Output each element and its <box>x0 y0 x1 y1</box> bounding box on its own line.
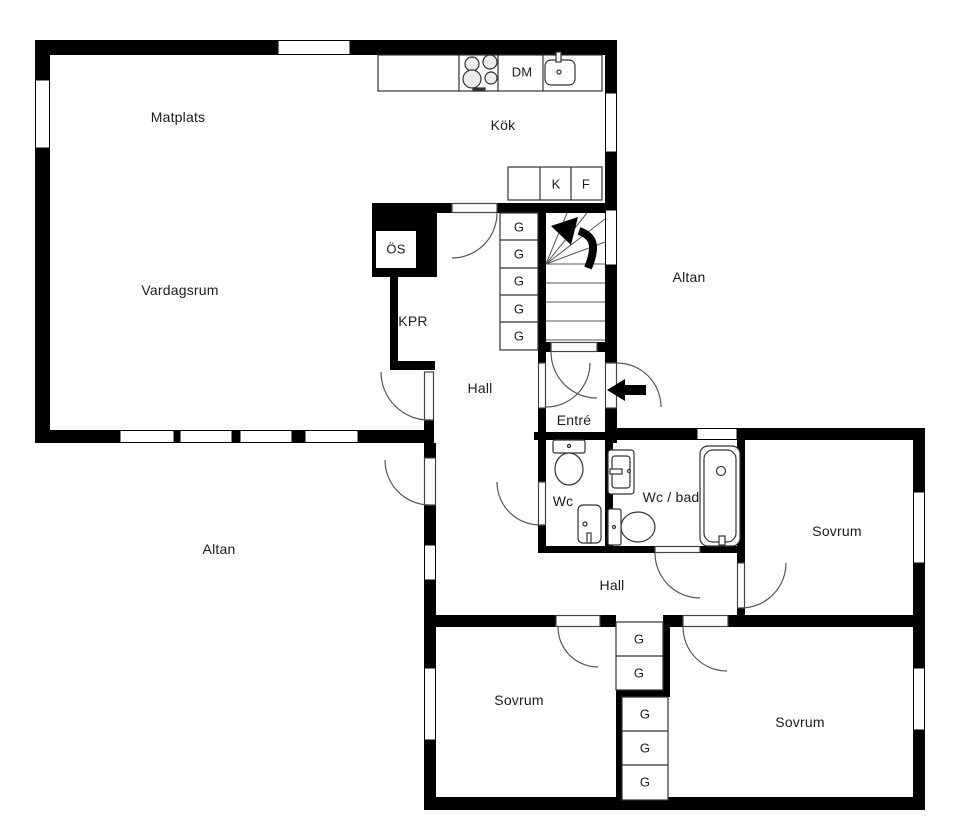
room-label-matplats: Matplats <box>151 109 206 125</box>
wall-segment <box>497 203 617 213</box>
door-leaf <box>425 458 436 505</box>
door-arc-sovrum-bl <box>558 627 598 667</box>
bathtub-drain <box>717 467 726 476</box>
faucet-icon <box>610 469 622 474</box>
door-arc-stairs <box>551 352 597 398</box>
stove-burner-icon <box>483 55 497 69</box>
wardrobe-label-g: G <box>514 220 524 235</box>
window <box>36 80 50 148</box>
wall-segment <box>600 615 616 627</box>
wall-segment <box>913 440 925 492</box>
sink-drain <box>583 522 587 526</box>
toilet-button <box>613 526 616 529</box>
door-arc-sovrum-right <box>741 563 786 608</box>
wall-segment <box>390 361 435 370</box>
window <box>914 668 925 730</box>
stove-burner-icon <box>465 57 479 71</box>
room-label-entre: Entré <box>557 412 591 428</box>
wall-segment <box>35 55 50 80</box>
stairs-up-arrow-icon <box>551 217 593 268</box>
window <box>425 668 436 740</box>
wardrobe-label-g: G <box>640 707 650 722</box>
room-label-altan-upper: Altan <box>673 269 706 285</box>
stove-burner-icon <box>485 72 497 84</box>
door-leaf <box>551 343 597 352</box>
wall-segment <box>424 505 436 545</box>
wall-segment <box>538 342 551 352</box>
toilet-icon <box>555 453 583 485</box>
wall-segment <box>437 203 452 213</box>
door-leaf <box>539 363 546 408</box>
wall-segment <box>737 608 745 615</box>
wall-segment <box>617 428 697 440</box>
fixture-label-os: ÖS <box>386 242 405 257</box>
room-label-sovrum-br: Sovrum <box>775 714 824 730</box>
room-label-hall-lower: Hall <box>600 577 625 593</box>
room-label-kpr: KPR <box>398 313 427 329</box>
wall-segment <box>534 432 617 440</box>
window <box>278 41 350 55</box>
faucet-icon <box>587 533 591 543</box>
wall-segment <box>35 430 120 443</box>
stove-handle <box>473 88 485 91</box>
wardrobe-label-g: G <box>514 247 524 262</box>
wall-segment <box>538 352 546 363</box>
door-arc-entre-hall <box>546 363 590 407</box>
floorplan-drawing <box>0 0 960 838</box>
floorplan: Matplats Kök Vardagsrum Hall KPR Altan A… <box>0 0 960 838</box>
wall-segment <box>737 428 925 440</box>
door-leaf <box>738 563 745 608</box>
door-arc-sovrum-br <box>683 627 727 671</box>
wall-segment <box>232 430 240 443</box>
door-arc-wcbad <box>655 553 700 598</box>
door-leaf <box>425 372 434 420</box>
room-label-wc: Wc <box>553 493 574 509</box>
wardrobe-label-g: G <box>634 632 644 647</box>
door-leaf <box>452 204 497 213</box>
window <box>180 431 232 443</box>
room-label-wcbad: Wc / bad <box>643 489 700 505</box>
wall-segment <box>597 342 605 352</box>
door-leaf <box>556 616 600 627</box>
door-arc-kitchen <box>452 213 497 258</box>
wall-segment <box>390 277 398 368</box>
room-label-sovrum-right: Sovrum <box>812 523 861 539</box>
room-label-altan-lower: Altan <box>203 541 236 557</box>
room-label-sovrum-bl: Sovrum <box>494 692 543 708</box>
wall-segment <box>35 148 50 443</box>
wall-segment <box>424 615 556 627</box>
wardrobe-label-g: G <box>514 329 524 344</box>
wall-segment <box>424 420 434 443</box>
wall-segment <box>913 730 925 797</box>
wall-segment <box>605 152 617 210</box>
wall-segment <box>35 40 278 55</box>
wall-segment <box>663 615 670 697</box>
fixture-label-frys: F <box>582 177 590 192</box>
wall-segment <box>424 740 436 797</box>
wall-segment <box>424 797 925 810</box>
window <box>697 429 737 440</box>
wardrobe-label-g: G <box>514 302 524 317</box>
toilet-icon <box>621 512 655 542</box>
staircase <box>546 213 605 340</box>
door-leaf <box>539 482 546 525</box>
window <box>606 210 617 265</box>
room-label-hall-upper: Hall <box>468 380 493 396</box>
wall-segment <box>538 408 546 432</box>
toilet-button <box>568 445 571 448</box>
kitchen-drain <box>557 70 561 74</box>
wall-segment <box>358 430 430 443</box>
wall-segment <box>605 55 617 93</box>
stove-burner-icon <box>463 70 481 88</box>
wardrobe-label-g: G <box>634 666 644 681</box>
wall-segment <box>538 203 546 350</box>
window <box>120 431 174 443</box>
door-arc-altan <box>385 460 430 505</box>
fixture-label-kyl: K <box>552 177 561 192</box>
walls <box>35 40 925 810</box>
wall-segment <box>728 615 925 627</box>
wall-segment <box>424 443 436 458</box>
wall-segment <box>616 692 622 800</box>
wall-segment <box>605 265 617 343</box>
wall-segment <box>605 343 617 363</box>
wardrobe-label-g: G <box>640 775 650 790</box>
room-label-kok: Kök <box>491 117 516 133</box>
door-arc-wc <box>497 482 540 525</box>
wardrobe-label-g: G <box>514 274 524 289</box>
wall-segment <box>616 690 670 697</box>
window <box>425 545 436 580</box>
bathtub-faucet <box>719 536 725 545</box>
wall-segment <box>292 430 305 443</box>
bathtub-inner <box>704 450 736 542</box>
wall-segment <box>350 40 617 55</box>
room-label-vardagsrum: Vardagsrum <box>141 282 218 298</box>
wardrobe-label-g: G <box>640 741 650 756</box>
wall-segment <box>538 546 655 553</box>
door-arc-livingroom <box>381 372 429 420</box>
door-leaf <box>655 547 700 553</box>
window <box>305 431 358 443</box>
fixture-label-dm: DM <box>512 65 533 80</box>
window <box>240 431 292 443</box>
wall-segment <box>174 430 180 443</box>
door-leaf <box>683 616 728 627</box>
window <box>914 492 925 563</box>
kitchen-faucet-icon <box>556 52 561 62</box>
wall-segment <box>538 432 546 482</box>
window <box>606 93 617 152</box>
sink-drain <box>628 470 631 473</box>
